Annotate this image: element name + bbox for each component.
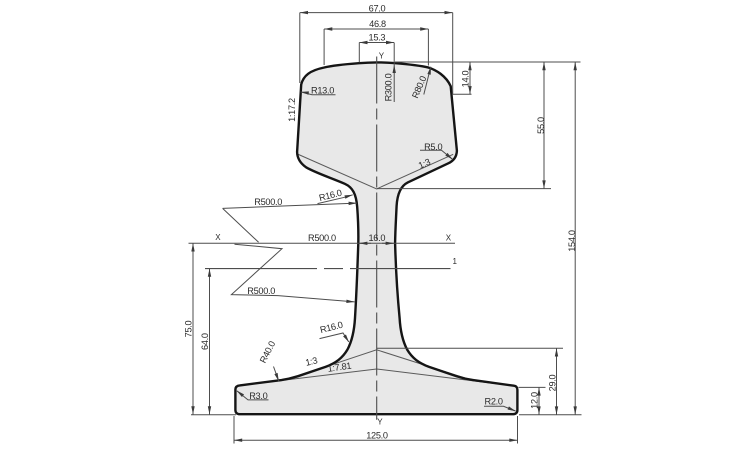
svg-text:R500.0: R500.0 xyxy=(308,233,336,243)
svg-text:1:17.2: 1:17.2 xyxy=(287,98,297,122)
svg-text:55.0: 55.0 xyxy=(536,117,546,134)
svg-text:12.0: 12.0 xyxy=(529,392,539,409)
svg-text:Y: Y xyxy=(379,51,385,60)
svg-text:67.0: 67.0 xyxy=(369,4,386,14)
svg-text:15.3: 15.3 xyxy=(369,33,386,43)
svg-text:X: X xyxy=(215,233,221,242)
svg-text:64.0: 64.0 xyxy=(200,333,210,350)
svg-text:16.0: 16.0 xyxy=(368,233,385,243)
svg-text:14.0: 14.0 xyxy=(461,70,471,87)
svg-text:R5.0: R5.0 xyxy=(424,142,442,152)
svg-text:R13.0: R13.0 xyxy=(311,86,334,96)
svg-text:R2.0: R2.0 xyxy=(484,397,502,407)
svg-text:75.0: 75.0 xyxy=(184,320,194,337)
svg-text:1: 1 xyxy=(453,257,458,266)
svg-text:R3.0: R3.0 xyxy=(249,391,267,401)
svg-text:Y: Y xyxy=(377,418,383,427)
svg-text:X: X xyxy=(446,234,452,243)
svg-text:R500.0: R500.0 xyxy=(254,197,282,207)
svg-text:125.0: 125.0 xyxy=(366,431,388,441)
svg-text:46.8: 46.8 xyxy=(369,19,386,29)
svg-text:R500.0: R500.0 xyxy=(247,286,275,296)
svg-text:154.0: 154.0 xyxy=(567,230,577,252)
svg-text:R300.0: R300.0 xyxy=(384,73,394,101)
svg-text:29.0: 29.0 xyxy=(547,374,557,391)
